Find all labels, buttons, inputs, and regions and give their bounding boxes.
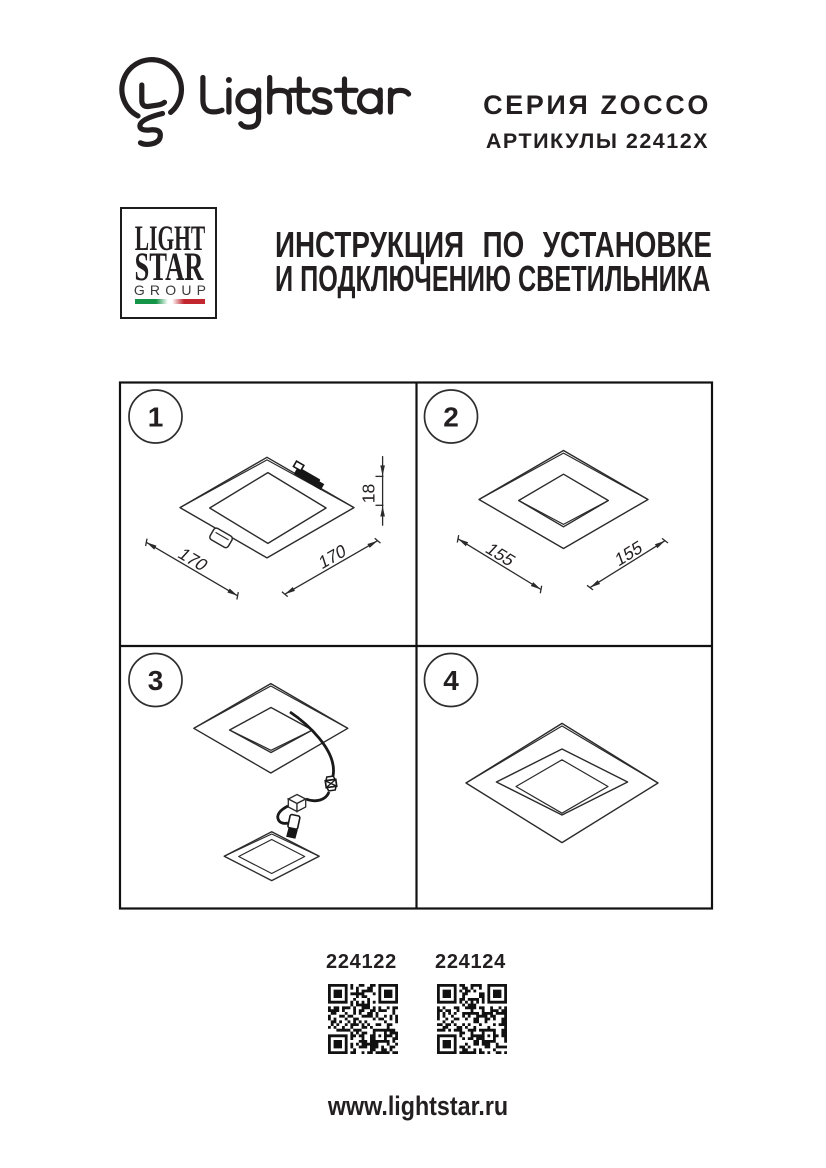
svg-text:2: 2 [443,402,459,433]
svg-text:170: 170 [317,540,349,574]
svg-text:170: 170 [174,545,213,575]
svg-text:155: 155 [613,536,645,571]
svg-text:18: 18 [358,484,378,503]
svg-text:4: 4 [443,665,459,696]
svg-text:1: 1 [148,402,164,433]
svg-text:3: 3 [148,665,164,696]
svg-text:155: 155 [481,540,520,570]
